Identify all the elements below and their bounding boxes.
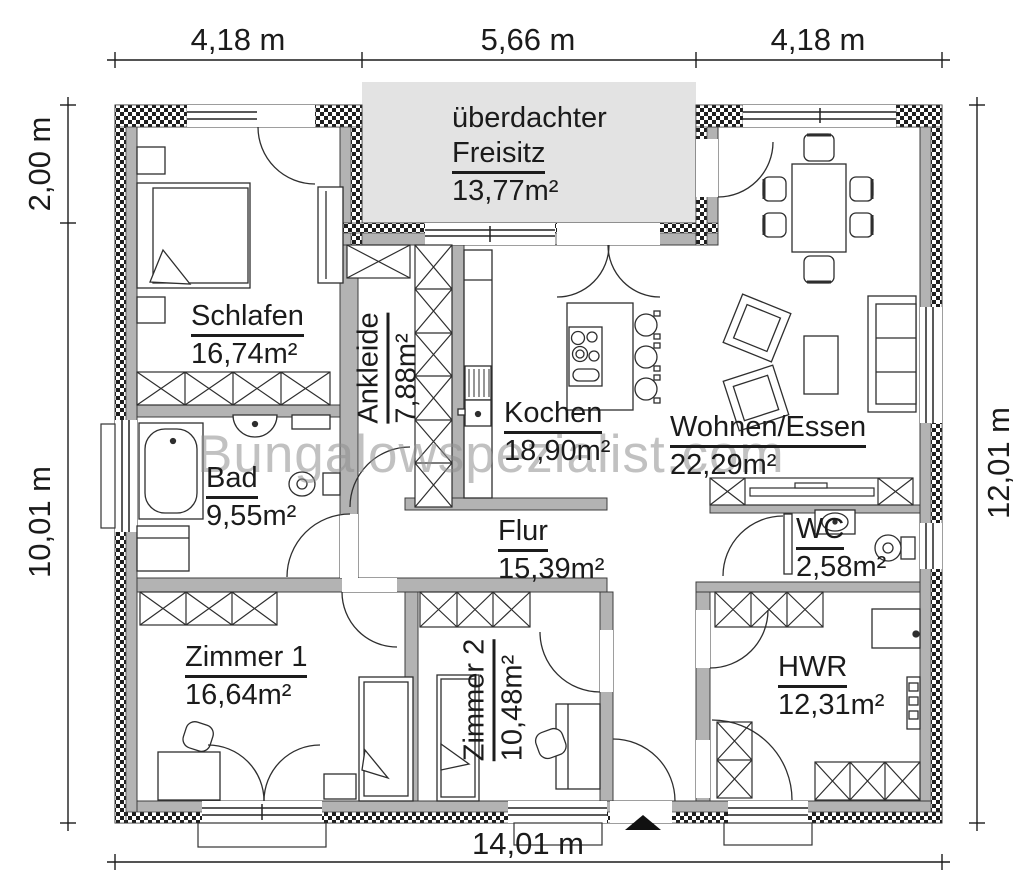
dim-left-upper: 2,00 m bbox=[22, 117, 58, 212]
room-label-schlafen: Schlafen 16,74m² bbox=[191, 299, 304, 372]
dim-left-lower: 10,01 m bbox=[22, 466, 58, 578]
room-name: Bad bbox=[206, 461, 258, 499]
room-label-zimmer1: Zimmer 1 16,64m² bbox=[185, 640, 307, 713]
room-area: 13,77m² bbox=[452, 174, 607, 209]
room-label-ankleide: Ankleide 7,88m² bbox=[352, 312, 425, 423]
dim-top-right: 4,18 m bbox=[771, 22, 866, 58]
room-label-wc: WC 2,58m² bbox=[796, 512, 886, 585]
room-name: Ankleide bbox=[352, 312, 390, 423]
room-area: 2,58m² bbox=[796, 550, 886, 585]
room-label-flur: Flur 15,39m² bbox=[498, 514, 604, 587]
room-name: Zimmer 2 bbox=[458, 639, 496, 761]
room-area: 22,29m² bbox=[670, 448, 866, 483]
floorplan-canvas: Bungalowspezialist.com 4,18 m 5,66 m 4,1… bbox=[0, 0, 1029, 895]
room-area: 16,74m² bbox=[191, 337, 304, 372]
dim-top-middle: 5,66 m bbox=[481, 22, 576, 58]
room-label-freisitz: überdachter Freisitz 13,77m² bbox=[452, 101, 607, 209]
room-name: Schlafen bbox=[191, 299, 304, 337]
room-prefix: überdachter bbox=[452, 101, 607, 136]
dim-right: 12,01 m bbox=[981, 407, 1017, 519]
room-label-zimmer2: Zimmer 2 10,48m² bbox=[458, 639, 531, 761]
room-area: 16,64m² bbox=[185, 678, 307, 713]
room-name: Freisitz bbox=[452, 136, 545, 174]
room-label-kochen: Kochen 18,90m² bbox=[504, 396, 610, 469]
room-name: WC bbox=[796, 512, 844, 550]
room-name: Kochen bbox=[504, 396, 602, 434]
furniture-schlafen bbox=[137, 147, 343, 323]
room-area: 7,88m² bbox=[390, 312, 425, 423]
dim-bottom: 14,01 m bbox=[472, 826, 584, 862]
room-area: 12,31m² bbox=[778, 688, 884, 723]
dim-top-left: 4,18 m bbox=[191, 22, 286, 58]
room-name: HWR bbox=[778, 650, 847, 688]
furniture-wohnen bbox=[723, 134, 916, 431]
room-name: Flur bbox=[498, 514, 548, 552]
room-area: 10,48m² bbox=[496, 639, 531, 761]
room-label-wohnen-essen: Wohnen/Essen 22,29m² bbox=[670, 410, 866, 483]
room-label-hwr: HWR 12,31m² bbox=[778, 650, 884, 723]
room-name: Wohnen/Essen bbox=[670, 410, 866, 448]
room-area: 18,90m² bbox=[504, 434, 610, 469]
room-area: 15,39m² bbox=[498, 552, 604, 587]
room-label-bad: Bad 9,55m² bbox=[206, 461, 296, 534]
room-area: 9,55m² bbox=[206, 499, 296, 534]
room-name: Zimmer 1 bbox=[185, 640, 307, 678]
